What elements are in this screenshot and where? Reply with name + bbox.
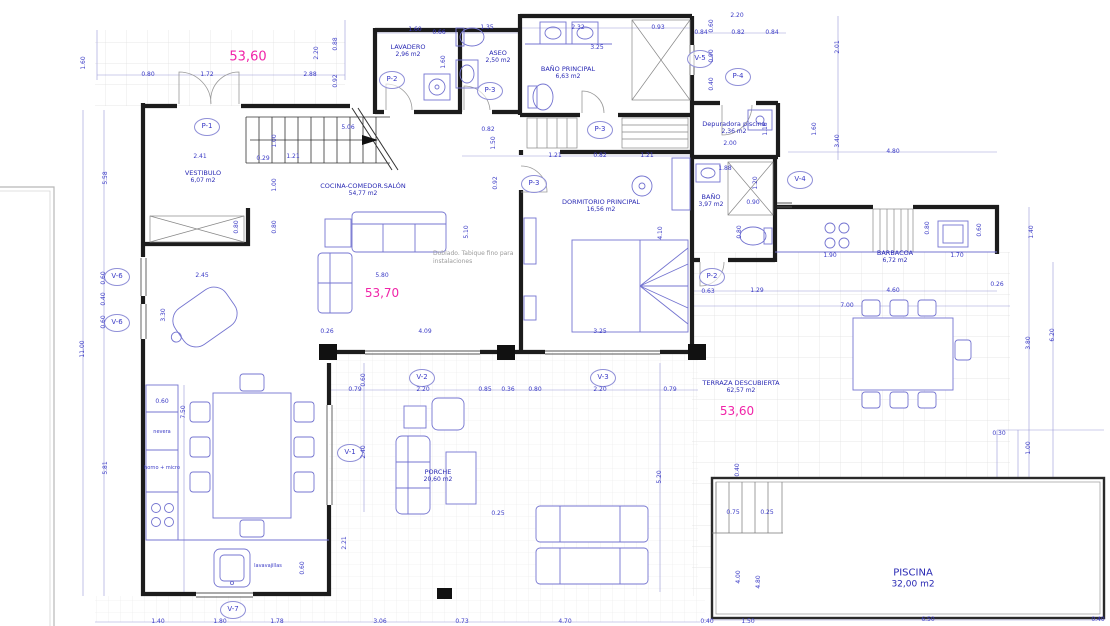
dim-label: 1.88 <box>718 166 731 172</box>
dim-label: 2.40 <box>361 445 367 458</box>
dim-label: 0.75 <box>726 510 739 516</box>
dim-label: 1.72 <box>200 72 213 78</box>
dim-label: 7.50 <box>181 405 187 418</box>
dim-label: 4.70 <box>558 619 571 625</box>
dim-label: 1.60 <box>408 27 421 33</box>
room-label-bano: BAÑO 3,97 m2 <box>699 193 724 209</box>
dim-label: 1.21 <box>548 153 561 159</box>
window-tag-v2: V-2 <box>409 369 435 387</box>
door-tag-p2: P-2 <box>379 71 405 89</box>
dim-label: 4.00 <box>736 570 742 583</box>
dim-label: 0.60 <box>101 271 107 284</box>
dim-label: 0.60 <box>361 373 367 386</box>
room-label-lavadero: LAVADERO 2,96 m2 <box>390 43 425 59</box>
door-tag-p3: P-3 <box>521 175 547 193</box>
dim-label: 4.80 <box>756 575 762 588</box>
dim-label: 0.60 <box>155 399 168 405</box>
dim-label: 0.93 <box>651 25 664 31</box>
dim-label: 1.20 <box>753 176 759 189</box>
dim-label: 0.88 <box>333 37 339 50</box>
dim-label: 2.88 <box>303 72 316 78</box>
dim-label: 0.25 <box>760 510 773 516</box>
dim-label: 0.40 <box>700 619 713 625</box>
dim-label: 0.90 <box>709 49 715 62</box>
dim-label: 2.01 <box>835 40 841 53</box>
window-tag-v6: V-6 <box>104 268 130 286</box>
surface-area-label: 53,60 <box>229 51 266 64</box>
dim-label: 1.00 <box>272 134 278 147</box>
dim-label: 0.84 <box>765 30 778 36</box>
construction-note: Doblado. Tabique fino para instalaciones <box>433 250 521 267</box>
dim-label: 4.60 <box>886 288 899 294</box>
dim-label: 2.32 <box>571 25 584 31</box>
dim-label: 1.00 <box>272 178 278 191</box>
dim-label: 0.82 <box>481 127 494 133</box>
dim-label: 0.79 <box>348 387 361 393</box>
dim-label: 0.60 <box>709 19 715 32</box>
dim-label: 2.20 <box>416 387 429 393</box>
door-tag-p3: P-3 <box>587 121 613 139</box>
dim-label: 1.35 <box>480 25 493 31</box>
dim-label: 0.40 <box>101 292 107 305</box>
dim-label: 4.80 <box>886 149 899 155</box>
dim-label: 6.20 <box>1050 328 1056 341</box>
dim-label: 1.40 <box>1029 225 1035 238</box>
room-label-salon: COCINA-COMEDOR.SALÓN 54,77 m2 <box>320 182 406 198</box>
dim-label: 2.20 <box>730 13 743 19</box>
dim-label: 1.50 <box>491 136 497 149</box>
dim-label: 0.85 <box>478 387 491 393</box>
dim-label: 1.60 <box>81 56 87 69</box>
room-label-dormitorio: DORMITORIO PRINCIPAL 16,56 m2 <box>562 198 640 214</box>
dim-label: 0.30 <box>992 431 1005 437</box>
room-label-depuradora: Depuradora piscina 2,36 m2 <box>702 120 766 136</box>
dim-label: 0.25 <box>491 511 504 517</box>
dim-label: 2.45 <box>195 273 208 279</box>
dim-label: 5.80 <box>375 273 388 279</box>
dim-label: 0.82 <box>731 30 744 36</box>
window-tag-v3: V-3 <box>590 369 616 387</box>
floor-plan-canvas: VESTIBULO 6,07 m2 COCINA-COMEDOR.SALÓN 5… <box>0 0 1110 626</box>
dim-label: 3.80 <box>1026 336 1032 349</box>
dim-label: 0.82 <box>593 153 606 159</box>
dim-label: 0.26 <box>990 282 1003 288</box>
dim-label: 1.00 <box>1026 441 1032 454</box>
dim-label: 2.21 <box>342 536 348 549</box>
dim-label: 1.50 <box>741 619 754 625</box>
dim-label: 0.63 <box>701 289 714 295</box>
dim-label: 0.80 <box>234 220 240 233</box>
dim-label: 5.10 <box>464 225 470 238</box>
dim-label: 1.60 <box>812 122 818 135</box>
dim-label: 0.79 <box>663 387 676 393</box>
dim-label: 11.00 <box>80 340 86 357</box>
dim-label: 0.80 <box>528 387 541 393</box>
dim-label: 5.58 <box>103 171 109 184</box>
dim-label: 2.41 <box>193 154 206 160</box>
dim-label: 5.81 <box>103 461 109 474</box>
pool <box>712 478 1104 618</box>
dim-label: 0.84 <box>694 30 707 36</box>
dim-label: 0.36 <box>501 387 514 393</box>
dim-label: 1.21 <box>640 153 653 159</box>
dim-label: 3.30 <box>161 308 167 321</box>
dim-label: 2.20 <box>593 387 606 393</box>
room-label-barbacoa: BARBACOA 6,72 m2 <box>877 249 913 265</box>
room-label-piscina: PISCINA 32,00 m2 <box>891 567 934 592</box>
dim-label: 1.70 <box>950 253 963 259</box>
oven-label: horno + micro <box>144 465 180 471</box>
dim-label: 5.06 <box>341 125 354 131</box>
sheet-frame <box>0 187 54 626</box>
surface-area-label: 53,60 <box>720 405 754 417</box>
door-tag-p3: P-3 <box>477 82 503 100</box>
dim-label: 0.80 <box>925 221 931 234</box>
window-tag-v6: V-6 <box>104 314 130 332</box>
dim-label: 0.66 <box>432 30 445 36</box>
dim-label: 1.21 <box>286 154 299 160</box>
dim-label: 4.10 <box>658 226 664 239</box>
dim-label: 0.26 <box>320 329 333 335</box>
dim-label: 0.60 <box>977 223 983 236</box>
surface-area-label: 53,70 <box>365 287 399 299</box>
dim-label: 0.80 <box>272 220 278 233</box>
dim-label: 1.18 <box>763 122 769 135</box>
window-tag-v4: V-4 <box>787 171 813 189</box>
door-tag-p4: P-4 <box>725 68 751 86</box>
dim-label: 0.40 <box>735 463 741 476</box>
dim-label: 2.00 <box>723 141 736 147</box>
dim-label: 1.29 <box>750 288 763 294</box>
dim-label: 6.50 <box>921 617 934 623</box>
dim-label: 3.25 <box>590 45 603 51</box>
room-label-terraza: TERRAZA DESCUBIERTA 62,57 m2 <box>702 379 779 395</box>
dim-label: 0.29 <box>256 156 269 162</box>
room-label-vestibulo: VESTIBULO 6,07 m2 <box>185 169 221 185</box>
dim-label: 7.00 <box>840 303 853 309</box>
dim-label: 0.73 <box>455 619 468 625</box>
dim-label: 0.92 <box>333 74 339 87</box>
dim-label: 0.92 <box>493 176 499 189</box>
room-label-porche: PORCHE 20,60 m2 <box>424 468 453 484</box>
dim-label: 0.80 <box>141 72 154 78</box>
dim-label: 2.20 <box>314 46 320 59</box>
dishwasher-label: lavavajillas <box>254 563 282 569</box>
dim-label: 1.80 <box>213 619 226 625</box>
dim-label: 4.09 <box>418 329 431 335</box>
dim-label: 1.60 <box>441 55 447 68</box>
dim-label: 0.40 <box>1091 617 1104 623</box>
fridge-label: nevera <box>153 429 170 435</box>
dim-label: 1.90 <box>823 253 836 259</box>
room-label-aseo: ASEO 2,50 m2 <box>486 49 511 65</box>
dim-label: 0.60 <box>300 561 306 574</box>
dim-label: 0.40 <box>709 77 715 90</box>
window-tag-v7: V-7 <box>220 601 246 619</box>
dim-label: 5.20 <box>657 470 663 483</box>
dim-label: 0.60 <box>101 315 107 328</box>
dim-label: 0.90 <box>746 200 759 206</box>
door-tag-p1: P-1 <box>194 118 220 136</box>
dim-label: 1.78 <box>270 619 283 625</box>
room-label-bano-principal: BAÑO PRINCIPAL 6,63 m2 <box>541 65 595 81</box>
dim-label: 0.80 <box>737 225 743 238</box>
door-tag-p2: P-2 <box>699 268 725 286</box>
dim-label: 3.40 <box>835 134 841 147</box>
dim-label: 1.40 <box>151 619 164 625</box>
dim-label: 3.06 <box>373 619 386 625</box>
dim-label: 3.25 <box>593 329 606 335</box>
